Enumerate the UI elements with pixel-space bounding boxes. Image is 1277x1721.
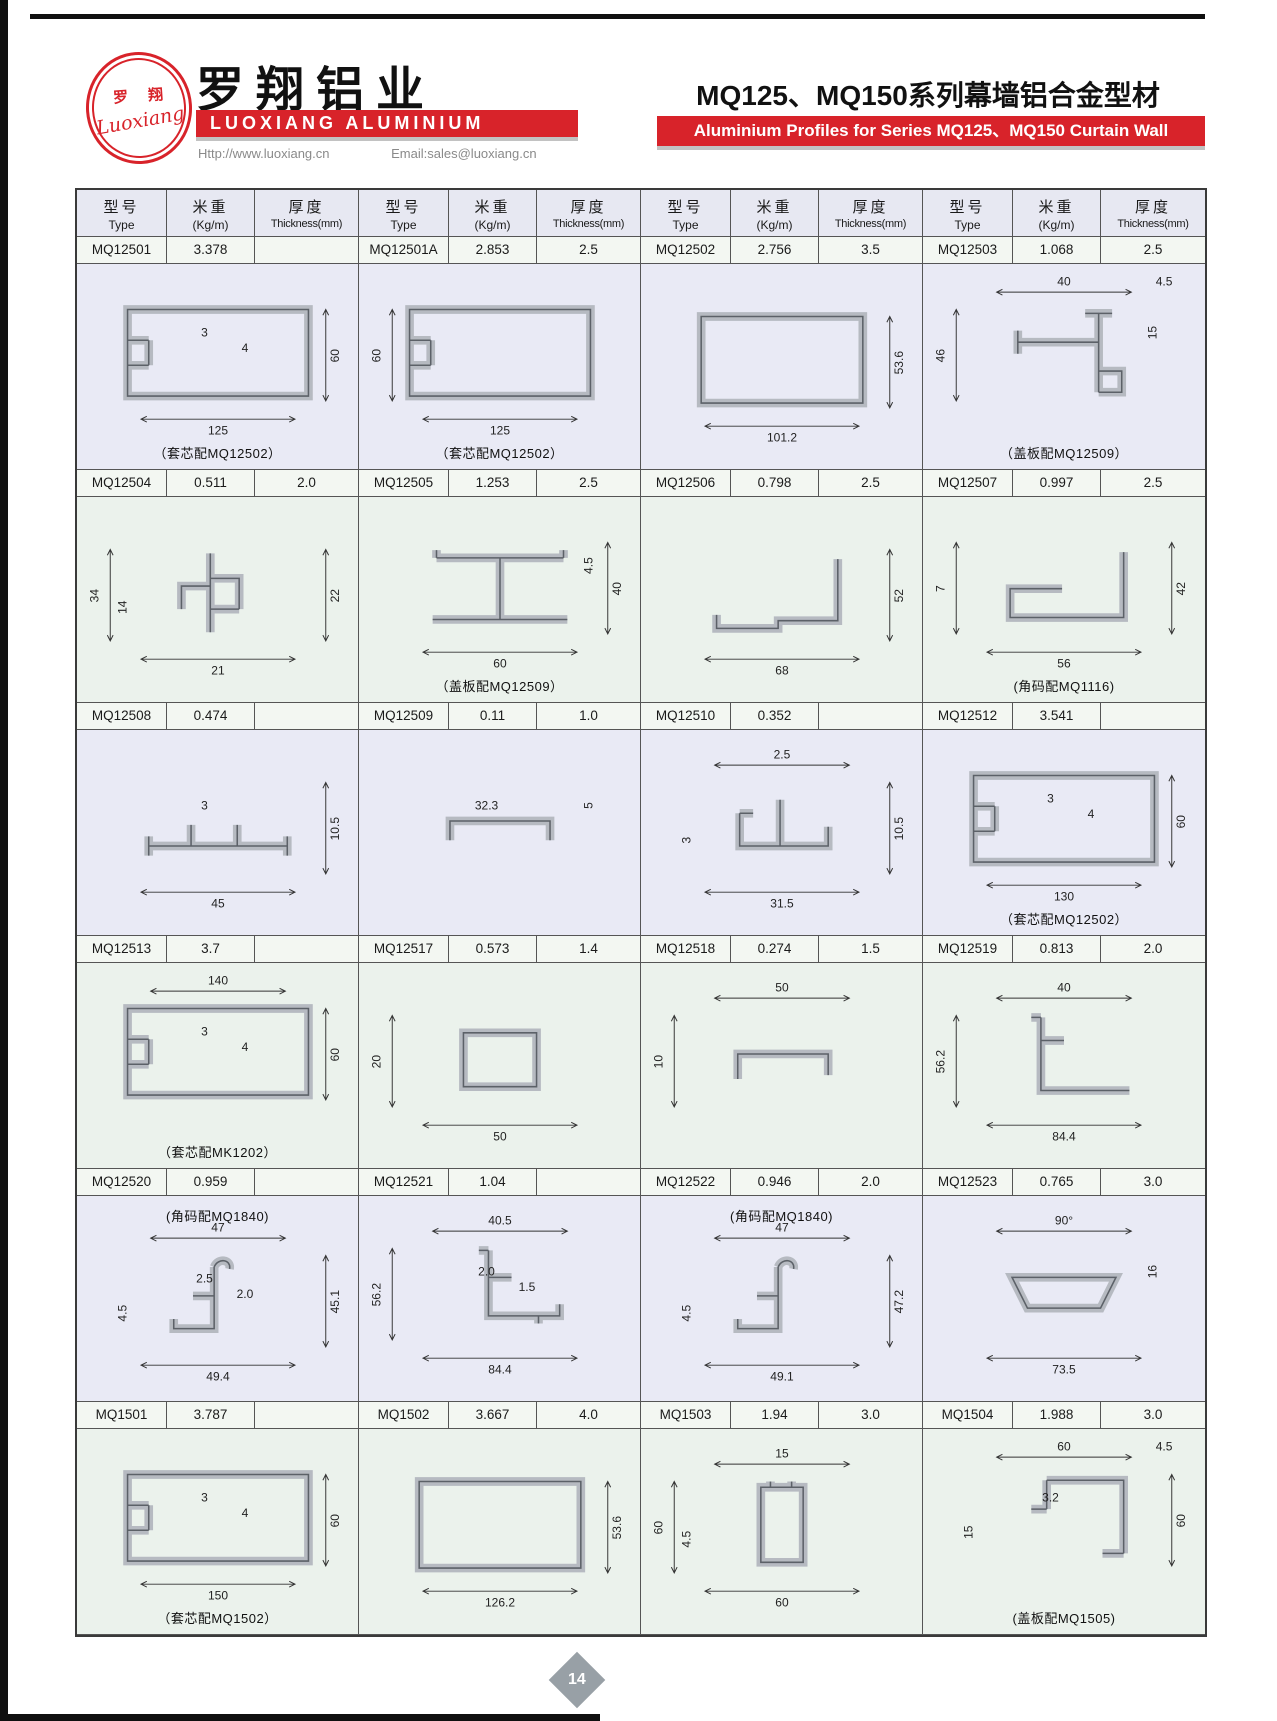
page-number: 14 — [568, 1671, 586, 1689]
profile-drawing: 4056.284.4 — [926, 977, 1202, 1155]
spec-row: MQ125133.7MQ125170.5731.4MQ125180.2741.5… — [77, 936, 1205, 963]
dimension-label: 45 — [211, 896, 225, 910]
profile-cell: 404.54615（盖板配MQ12509） — [923, 264, 1205, 470]
profile-cell: 4.54060（盖板配MQ12509） — [359, 497, 641, 703]
weight-cell: 1.253 — [449, 470, 537, 497]
dimension-label: 4 — [241, 1040, 248, 1054]
thickness-cell: 3.0 — [819, 1402, 923, 1429]
drawing-row: 341422214.54060（盖板配MQ12509）526874256(角码配… — [77, 497, 1205, 703]
dimension-label: 56.2 — [369, 1282, 383, 1306]
dimension-label: 60 — [1174, 1514, 1188, 1528]
dimension-label: 84.4 — [1052, 1129, 1076, 1143]
dimension-label: 56.2 — [934, 1049, 948, 1073]
spec-row: MQ125200.959MQ125211.04MQ125220.9462.0MQ… — [77, 1169, 1205, 1196]
spec-row: MQ125080.474MQ125090.111.0MQ125100.352MQ… — [77, 703, 1205, 730]
col-header-thickness: 厚度Thickness(mm) — [255, 190, 359, 237]
type-cell: MQ12504 — [77, 470, 167, 497]
type-cell: MQ12519 — [923, 936, 1013, 963]
thickness-cell — [255, 1169, 359, 1196]
dimension-label: 15 — [775, 1446, 789, 1460]
dimension-label: 60 — [328, 349, 342, 363]
dimension-label: 15 — [962, 1525, 976, 1539]
type-cell: MQ12523 — [923, 1169, 1013, 1196]
dimension-label: 40 — [610, 582, 624, 596]
profile-drawing: 3460150 — [80, 1436, 356, 1614]
thickness-cell: 2.5 — [537, 237, 641, 264]
weight-cell: 3.7 — [167, 936, 255, 963]
email-text: Email:sales@luoxiang.cn — [391, 146, 536, 161]
thickness-cell: 2.5 — [819, 470, 923, 497]
profile-cell: 90°1673.5 — [923, 1196, 1205, 1402]
type-cell: MQ12508 — [77, 703, 167, 730]
dimension-label: 2.5 — [773, 747, 790, 761]
dimension-label: 60 — [775, 1595, 789, 1609]
type-cell: MQ1502 — [359, 1402, 449, 1429]
type-cell: MQ12522 — [641, 1169, 731, 1196]
company-logo: 罗 翔 Luoxiang — [82, 48, 196, 167]
dimension-label: 40.5 — [488, 1213, 512, 1227]
profile-drawing: 154.56060 — [644, 1443, 920, 1621]
thickness-cell — [255, 703, 359, 730]
profile-cell: 5010 — [641, 963, 923, 1169]
profile-caption: （套芯配MQ12502） — [1000, 909, 1128, 928]
dimension-label: 4.5 — [679, 1305, 693, 1322]
weight-cell: 0.11 — [449, 703, 537, 730]
profile-drawing: 472.52.045.14.549.4 — [80, 1217, 356, 1395]
drawing-row: 3460150（套芯配MQ1502）53.6126.2154.560604.56… — [77, 1429, 1205, 1635]
profile-cell: 32.35 — [359, 730, 641, 936]
thickness-cell: 2.0 — [1101, 936, 1205, 963]
dimension-label: 49.1 — [770, 1370, 794, 1384]
weight-cell: 0.511 — [167, 470, 255, 497]
dimension-label: 60 — [328, 1514, 342, 1528]
profile-caption: （套芯配MK1202） — [158, 1142, 277, 1161]
profile-caption: （盖板配MQ12509） — [1000, 443, 1128, 462]
dimension-label: 2.0 — [236, 1287, 253, 1301]
type-cell: MQ12517 — [359, 936, 449, 963]
weight-cell: 0.798 — [731, 470, 819, 497]
thickness-cell: 3.0 — [1101, 1169, 1205, 1196]
dimension-label: 49.4 — [206, 1370, 230, 1384]
profile-cell: 5268 — [641, 497, 923, 703]
dimension-label: 10.5 — [892, 816, 906, 840]
dimension-label: 7 — [934, 585, 948, 592]
profile-drawing: 5268 — [644, 511, 920, 689]
profile-cell: 2050 — [359, 963, 641, 1169]
profile-cell: 3460130（套芯配MQ12502） — [923, 730, 1205, 936]
dimension-label: 60 — [493, 657, 507, 671]
profile-drawing: 53.6126.2 — [362, 1443, 638, 1621]
dimension-label: 46 — [934, 349, 948, 363]
profile-drawing: 34142221 — [80, 511, 356, 689]
profile-drawing: 404.54615 — [926, 271, 1202, 449]
col-header-type: 型号Type — [923, 190, 1013, 237]
type-cell: MQ1504 — [923, 1402, 1013, 1429]
type-cell: MQ12502 — [641, 237, 731, 264]
weight-cell: 0.352 — [731, 703, 819, 730]
dimension-label: 60 — [369, 349, 383, 363]
profile-drawing: 74256 — [926, 504, 1202, 682]
profile-drawing: 4747.24.549.1 — [644, 1217, 920, 1395]
dimension-label: 4.5 — [581, 557, 595, 574]
dimension-label: 22 — [328, 588, 342, 602]
dimension-label: 90° — [1055, 1213, 1073, 1227]
drawing-row: 1403460（套芯配MK1202）205050104056.284.4 — [77, 963, 1205, 1169]
weight-cell: 3.787 — [167, 1402, 255, 1429]
dimension-label: 16 — [1145, 1264, 1159, 1278]
profile-drawing: 60125 — [362, 271, 638, 449]
profile-cell: 40.52.056.21.584.4 — [359, 1196, 641, 1402]
dimension-label: 42 — [1174, 582, 1188, 596]
thickness-cell: 3.0 — [1101, 1402, 1205, 1429]
thickness-cell: 2.5 — [1101, 237, 1205, 264]
profile-drawing: 4.56015603.2 — [926, 1436, 1202, 1614]
dimension-label: 10.5 — [328, 816, 342, 840]
type-cell: MQ12503 — [923, 237, 1013, 264]
thickness-cell — [255, 1402, 359, 1429]
type-cell: MQ12507 — [923, 470, 1013, 497]
profile-drawing: 1403460 — [80, 970, 356, 1148]
dimension-label: 50 — [493, 1129, 507, 1143]
scan-edge-left — [0, 0, 8, 1721]
profile-cell: 53.6101.2 — [641, 264, 923, 470]
dimension-label: 1.5 — [518, 1279, 535, 1293]
profile-caption: （套芯配MQ12502） — [435, 443, 563, 462]
scan-edge-bottom — [0, 1714, 600, 1721]
dimension-label: 3 — [201, 1490, 208, 1504]
profile-cell: 310.545 — [77, 730, 359, 936]
thickness-cell — [255, 237, 359, 264]
thickness-cell: 1.5 — [819, 936, 923, 963]
dimension-label: 60 — [1057, 1439, 1071, 1453]
profile-drawing: 5010 — [644, 977, 920, 1155]
dimension-label: 101.2 — [766, 430, 796, 444]
dimension-label: 50 — [775, 980, 789, 994]
dimension-label: 20 — [369, 1054, 383, 1068]
company-logo-inner: 罗 翔 Luoxiang — [89, 55, 190, 161]
profile-drawing: 2.510.5331.5 — [644, 744, 920, 922]
profile-drawing: 2050 — [362, 977, 638, 1155]
profile-cell: 74256(角码配MQ1116) — [923, 497, 1205, 703]
profile-cell: 3460150（套芯配MQ1502） — [77, 1429, 359, 1635]
col-header-type: 型号Type — [77, 190, 167, 237]
profile-cell: (角码配MQ1840)4747.24.549.1 — [641, 1196, 923, 1402]
type-cell: MQ12506 — [641, 470, 731, 497]
col-header-weight: 米重(Kg/m) — [731, 190, 819, 237]
thickness-cell: 2.0 — [255, 470, 359, 497]
dimension-label: 56 — [1057, 657, 1071, 671]
dimension-label: 2.5 — [196, 1271, 213, 1285]
dimension-label: 2.0 — [478, 1264, 495, 1278]
profile-drawing: 3460125 — [80, 271, 356, 449]
drawing-row: (角码配MQ1840)472.52.045.14.549.440.52.056.… — [77, 1196, 1205, 1402]
type-cell: MQ1503 — [641, 1402, 731, 1429]
type-cell: MQ12510 — [641, 703, 731, 730]
dimension-label: 4 — [241, 341, 248, 355]
profile-cell: 4056.284.4 — [923, 963, 1205, 1169]
profile-drawing: 4.54060 — [362, 504, 638, 682]
dimension-label: 47 — [775, 1220, 789, 1234]
profile-drawing: 3460130 — [926, 737, 1202, 915]
dimension-label: 40 — [1057, 980, 1071, 994]
dimension-label: 125 — [489, 424, 509, 438]
dimension-label: 4.5 — [679, 1530, 693, 1547]
weight-cell: 0.274 — [731, 936, 819, 963]
dimension-label: 60 — [328, 1048, 342, 1062]
profile-drawing: 90°1673.5 — [926, 1210, 1202, 1388]
dimension-label: 3 — [1047, 791, 1054, 805]
profile-caption: （套芯配MQ12502） — [153, 443, 281, 462]
dimension-label: 53.6 — [610, 1515, 624, 1539]
dimension-label: 60 — [1174, 815, 1188, 829]
thickness-cell — [537, 1169, 641, 1196]
thickness-cell: 4.0 — [537, 1402, 641, 1429]
weight-cell: 3.541 — [1013, 703, 1101, 730]
dimension-label: 47.2 — [892, 1290, 906, 1314]
thickness-cell: 2.5 — [1101, 470, 1205, 497]
profile-drawing: 40.52.056.21.584.4 — [362, 1210, 638, 1388]
type-cell: MQ1501 — [77, 1402, 167, 1429]
thickness-cell: 1.4 — [537, 936, 641, 963]
dimension-label: 73.5 — [1052, 1362, 1076, 1376]
dimension-label: 10 — [651, 1054, 665, 1068]
thickness-cell — [1101, 703, 1205, 730]
page-subtitle-banner: Aluminium Profiles for Series MQ125、MQ15… — [657, 116, 1205, 146]
profile-caption: （套芯配MQ1502） — [157, 1608, 277, 1627]
weight-cell: 0.813 — [1013, 936, 1101, 963]
weight-cell: 1.04 — [449, 1169, 537, 1196]
weight-cell: 0.765 — [1013, 1169, 1101, 1196]
weight-cell: 1.988 — [1013, 1402, 1101, 1429]
dimension-label: 3 — [201, 798, 208, 812]
page-number-badge: 14 — [549, 1652, 606, 1709]
dimension-label: 125 — [207, 424, 227, 438]
profile-caption: （盖板配MQ12509） — [435, 676, 563, 695]
col-header-weight: 米重(Kg/m) — [167, 190, 255, 237]
dimension-label: 3.2 — [1042, 1490, 1059, 1504]
weight-cell: 0.997 — [1013, 470, 1101, 497]
thickness-cell: 2.5 — [537, 470, 641, 497]
type-cell: MQ12509 — [359, 703, 449, 730]
dimension-label: 32.3 — [474, 798, 498, 812]
profile-cell: 1403460（套芯配MK1202） — [77, 963, 359, 1169]
dimension-label: 40 — [1057, 274, 1071, 288]
dimension-label: 3 — [201, 1024, 208, 1038]
profile-cell: 4.56015603.2(盖板配MQ1505) — [923, 1429, 1205, 1635]
dimension-label: 52 — [892, 588, 906, 602]
type-cell: MQ12512 — [923, 703, 1013, 730]
dimension-label: 3 — [679, 836, 693, 843]
col-header-thickness: 厚度Thickness(mm) — [537, 190, 641, 237]
weight-cell: 0.573 — [449, 936, 537, 963]
dimension-label: 47 — [211, 1220, 225, 1234]
dimension-label: 4 — [1088, 807, 1095, 821]
profile-caption: (盖板配MQ1505) — [1012, 1608, 1115, 1627]
col-header-thickness: 厚度Thickness(mm) — [819, 190, 923, 237]
thickness-cell: 3.5 — [819, 237, 923, 264]
dimension-label: 140 — [207, 973, 227, 987]
dimension-label: 84.4 — [488, 1362, 512, 1376]
type-cell: MQ12501A — [359, 237, 449, 264]
weight-cell: 0.959 — [167, 1169, 255, 1196]
dimension-label: 31.5 — [770, 896, 794, 910]
weight-cell: 2.756 — [731, 237, 819, 264]
type-cell: MQ12505 — [359, 470, 449, 497]
type-cell: MQ12518 — [641, 936, 731, 963]
dimension-label: 21 — [211, 663, 225, 677]
profile-drawing: 310.545 — [80, 744, 356, 922]
contact-line: Http://www.luoxiang.cn Email:sales@luoxi… — [198, 146, 595, 161]
profile-cell: (角码配MQ1840)472.52.045.14.549.4 — [77, 1196, 359, 1402]
col-header-weight: 米重(Kg/m) — [449, 190, 537, 237]
dimension-label: 53.6 — [892, 350, 906, 374]
weight-cell: 0.474 — [167, 703, 255, 730]
thickness-cell — [819, 703, 923, 730]
scan-edge-top — [30, 14, 1205, 19]
company-name-english-banner: LUOXIANG ALUMINIUM — [196, 110, 578, 137]
table-header-row: 型号Type米重(Kg/m)厚度Thickness(mm)型号Type米重(Kg… — [77, 190, 1205, 237]
dimension-label: 5 — [581, 801, 595, 808]
dimension-label: 4.5 — [1156, 274, 1173, 288]
thickness-cell — [255, 936, 359, 963]
col-header-type: 型号Type — [359, 190, 449, 237]
dimension-label: 150 — [207, 1589, 227, 1603]
spec-row: MQ125013.378MQ12501A2.8532.5MQ125022.756… — [77, 237, 1205, 264]
dimension-label: 60 — [651, 1520, 665, 1534]
dimension-label: 45.1 — [328, 1290, 342, 1314]
weight-cell: 1.068 — [1013, 237, 1101, 264]
dimension-label: 14 — [115, 600, 129, 614]
type-cell: MQ12501 — [77, 237, 167, 264]
page-title: MQ125、MQ150系列幕墙铝合金型材 — [650, 74, 1206, 114]
profile-cell: 2.510.5331.5 — [641, 730, 923, 936]
profile-cell: 154.56060 — [641, 1429, 923, 1635]
profile-caption: (角码配MQ1116) — [1013, 676, 1114, 695]
dimension-label: 4.5 — [115, 1305, 129, 1322]
weight-cell: 2.853 — [449, 237, 537, 264]
spec-row: MQ125040.5112.0MQ125051.2532.5MQ125060.7… — [77, 470, 1205, 497]
thickness-cell: 2.0 — [819, 1169, 923, 1196]
col-header-type: 型号Type — [641, 190, 731, 237]
type-cell: MQ12521 — [359, 1169, 449, 1196]
profile-cell: 60125（套芯配MQ12502） — [359, 264, 641, 470]
weight-cell: 3.667 — [449, 1402, 537, 1429]
dimension-label: 68 — [775, 663, 789, 677]
profile-cell: 53.6126.2 — [359, 1429, 641, 1635]
weight-cell: 1.94 — [731, 1402, 819, 1429]
dimension-label: 34 — [87, 588, 101, 602]
dimension-label: 130 — [1054, 890, 1074, 904]
dimension-label: 4 — [241, 1506, 248, 1520]
website-text: Http://www.luoxiang.cn — [198, 146, 330, 161]
profile-cell: 3460125（套芯配MQ12502） — [77, 264, 359, 470]
col-header-thickness: 厚度Thickness(mm) — [1101, 190, 1205, 237]
dimension-label: 126.2 — [484, 1595, 514, 1609]
type-cell: MQ12513 — [77, 936, 167, 963]
drawing-row: 310.54532.352.510.5331.53460130（套芯配MQ125… — [77, 730, 1205, 936]
weight-cell: 3.378 — [167, 237, 255, 264]
logo-chinese-text: 罗 翔 — [104, 82, 171, 108]
spec-row: MQ15013.787MQ15023.6674.0MQ15031.943.0MQ… — [77, 1402, 1205, 1429]
drawing-row: 3460125（套芯配MQ12502）60125（套芯配MQ12502）53.6… — [77, 264, 1205, 470]
profile-table: 型号Type米重(Kg/m)厚度Thickness(mm)型号Type米重(Kg… — [75, 188, 1207, 1637]
weight-cell: 0.946 — [731, 1169, 819, 1196]
thickness-cell: 1.0 — [537, 703, 641, 730]
profile-drawing: 32.35 — [362, 744, 638, 922]
profile-cell: 34142221 — [77, 497, 359, 703]
dimension-label: 15 — [1145, 326, 1159, 340]
dimension-label: 3 — [201, 325, 208, 339]
col-header-weight: 米重(Kg/m) — [1013, 190, 1101, 237]
profile-drawing: 53.6101.2 — [644, 278, 920, 456]
dimension-label: 4.5 — [1156, 1439, 1173, 1453]
type-cell: MQ12520 — [77, 1169, 167, 1196]
